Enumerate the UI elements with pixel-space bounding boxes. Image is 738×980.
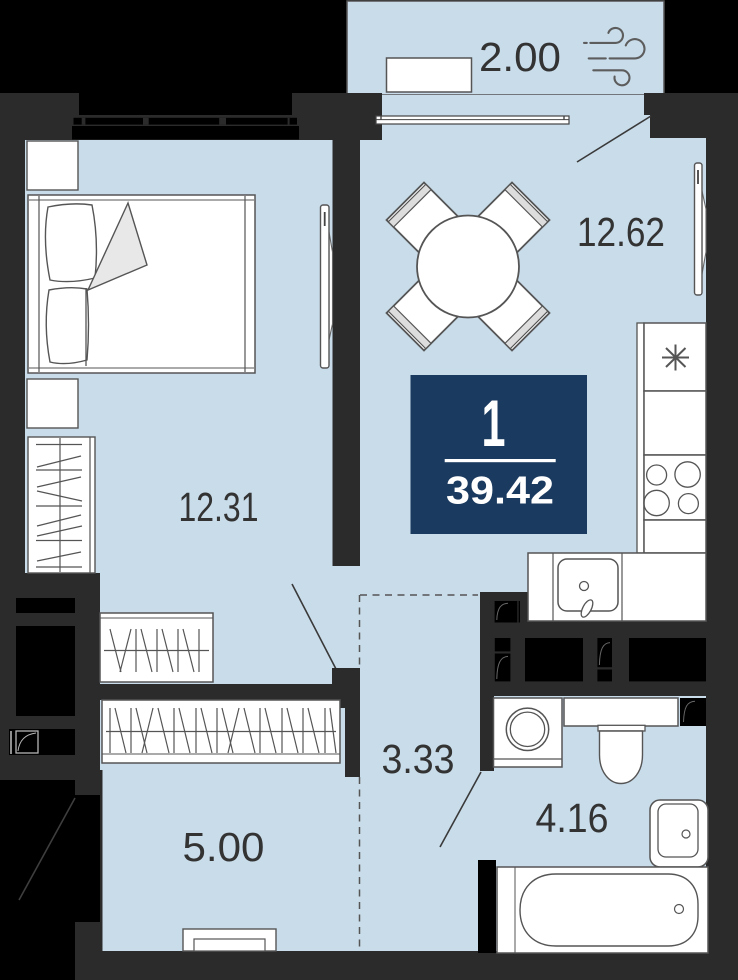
svg-text:5.00: 5.00 xyxy=(183,824,265,870)
svg-text:12.31: 12.31 xyxy=(179,484,259,530)
svg-text:4.16: 4.16 xyxy=(536,795,609,841)
svg-text:39.42: 39.42 xyxy=(446,470,554,513)
svg-text:2.00: 2.00 xyxy=(479,34,561,80)
svg-text:1: 1 xyxy=(482,386,506,460)
svg-text:12.62: 12.62 xyxy=(577,209,665,255)
svg-text:3.33: 3.33 xyxy=(382,736,455,782)
